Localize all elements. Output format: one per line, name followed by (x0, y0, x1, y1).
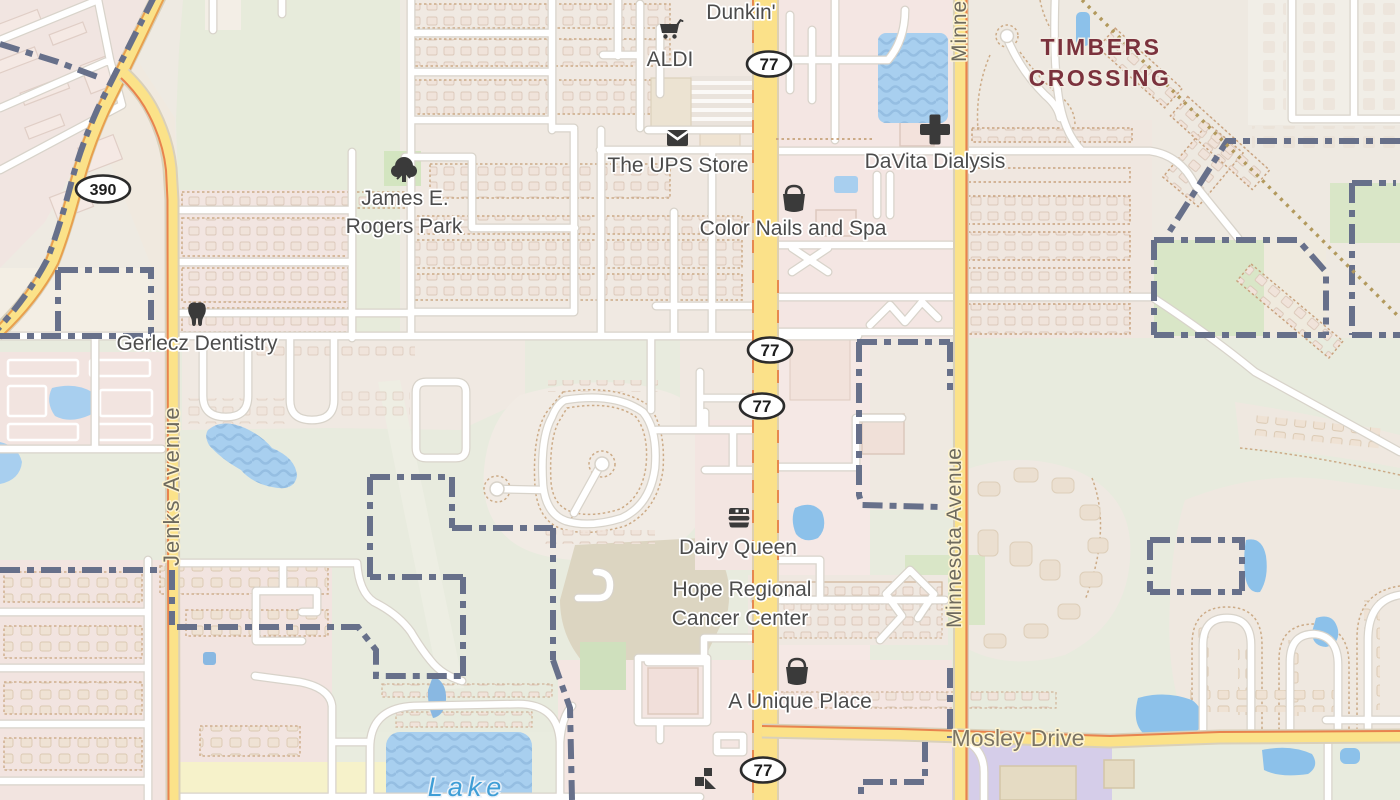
svg-text:Rogers Park: Rogers Park (346, 215, 463, 238)
svg-text:A Unique Place: A Unique Place (728, 690, 872, 713)
svg-text:390: 390 (90, 182, 117, 199)
svg-text:77: 77 (753, 397, 772, 416)
svg-text:Minnesota Aven: Minnesota Aven (948, 0, 971, 62)
svg-text:Dairy Queen: Dairy Queen (679, 536, 797, 559)
svg-text:ALDI: ALDI (647, 48, 694, 71)
svg-text:Jenks Avenue: Jenks Avenue (159, 405, 184, 566)
svg-text:TIMBERS: TIMBERS (1041, 34, 1162, 60)
svg-text:The UPS Store: The UPS Store (607, 154, 748, 177)
svg-text:Mosley Drive: Mosley Drive (952, 725, 1085, 751)
svg-text:77: 77 (761, 341, 780, 360)
svg-text:Gerlecz Dentistry: Gerlecz Dentistry (116, 332, 278, 355)
svg-text:Hope Regional: Hope Regional (673, 578, 812, 601)
svg-text:77: 77 (754, 761, 773, 780)
svg-text:77: 77 (760, 55, 779, 74)
svg-text:Lake: Lake (428, 772, 507, 800)
svg-text:Cancer Center: Cancer Center (672, 607, 809, 630)
svg-text:CROSSING: CROSSING (1029, 65, 1172, 91)
svg-text:Color Nails and Spa: Color Nails and Spa (700, 217, 887, 240)
svg-text:James E.: James E. (361, 187, 449, 210)
svg-text:Minnesota Avenue: Minnesota Avenue (943, 448, 966, 628)
svg-text:DaVita Dialysis: DaVita Dialysis (865, 150, 1006, 173)
svg-text:Dunkin': Dunkin' (706, 1, 775, 24)
